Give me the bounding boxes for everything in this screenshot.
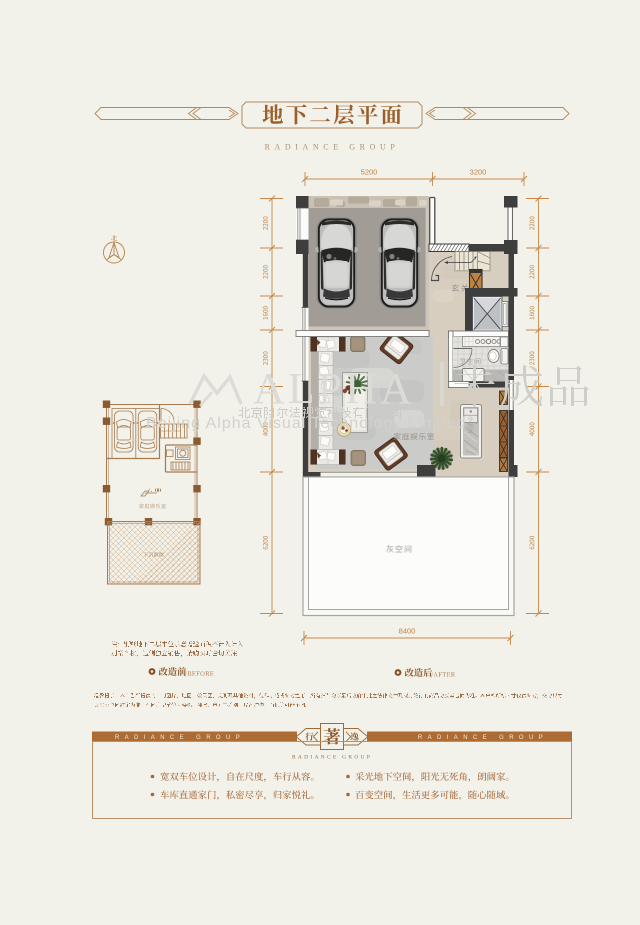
svg-text:Beijing Alpha Visual Technolog: Beijing Alpha Visual Technology Limited <box>146 415 466 432</box>
svg-text:RADIANCE GROUP: RADIANCE GROUP <box>265 143 400 152</box>
svg-text:RADIANCE GROUP: RADIANCE GROUP <box>115 735 245 741</box>
svg-text:5200: 5200 <box>361 168 378 177</box>
svg-text:8400: 8400 <box>399 627 416 636</box>
svg-text:RADIANCE GROUP: RADIANCE GROUP <box>418 735 548 741</box>
svg-text:3200: 3200 <box>470 168 487 177</box>
svg-text:RADIANCE GROUP: RADIANCE GROUP <box>292 755 372 761</box>
svg-text:ALPHA: ALPHA <box>253 364 415 413</box>
